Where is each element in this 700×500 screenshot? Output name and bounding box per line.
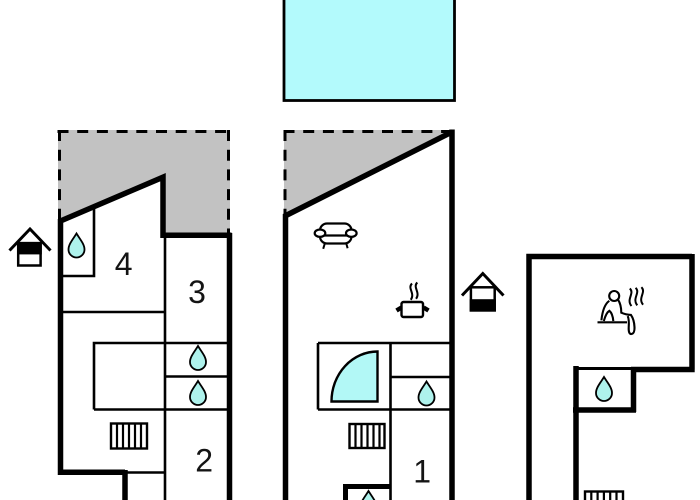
- svg-text:2: 2: [195, 443, 213, 479]
- svg-text:1: 1: [413, 454, 431, 490]
- svg-text:3: 3: [188, 274, 206, 310]
- svg-text:4: 4: [115, 246, 133, 282]
